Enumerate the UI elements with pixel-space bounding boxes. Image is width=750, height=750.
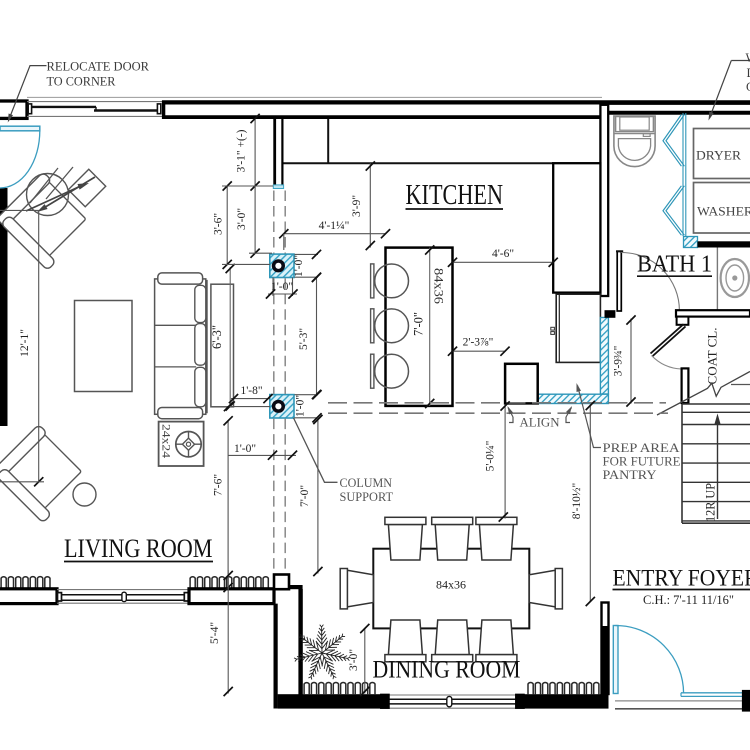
- svg-text:WASHER: WASHER: [697, 205, 750, 219]
- svg-text:4'-1¼": 4'-1¼": [319, 220, 350, 232]
- svg-text:1'-0": 1'-0": [295, 395, 307, 417]
- svg-text:W: W: [746, 51, 750, 65]
- svg-text:KITCHEN: KITCHEN: [406, 180, 504, 211]
- svg-text:84x36: 84x36: [432, 268, 446, 304]
- svg-text:PANTRY: PANTRY: [603, 467, 658, 482]
- svg-text:8'-10½": 8'-10½": [571, 483, 583, 519]
- svg-text:2'-3⅞": 2'-3⅞": [463, 337, 494, 349]
- svg-text:7'-0": 7'-0": [299, 485, 311, 507]
- svg-text:7'-6": 7'-6": [213, 474, 225, 496]
- svg-text:D: D: [747, 66, 750, 80]
- svg-text:C.H.: 7'-11 11/16": C.H.: 7'-11 11/16": [643, 592, 734, 607]
- svg-text:1'-0": 1'-0": [293, 255, 305, 277]
- svg-text:84x36: 84x36: [436, 578, 466, 592]
- svg-text:LIVING ROOM: LIVING ROOM: [64, 534, 213, 563]
- svg-text:5'-3": 5'-3": [298, 328, 310, 350]
- svg-text:3'-0": 3'-0": [236, 208, 248, 230]
- svg-text:COAT CL.: COAT CL.: [705, 328, 720, 385]
- svg-text:24x24: 24x24: [160, 424, 172, 458]
- svg-text:4'-6": 4'-6": [492, 248, 514, 260]
- svg-text:1'-0": 1'-0": [234, 443, 256, 455]
- svg-text:C: C: [746, 80, 750, 94]
- svg-text:3'-9¾": 3'-9¾": [613, 346, 625, 377]
- svg-text:TO CORNER: TO CORNER: [47, 74, 116, 89]
- svg-text:1'-0": 1'-0": [271, 281, 293, 293]
- svg-text:3'-0": 3'-0": [348, 649, 360, 671]
- svg-text:BATH 1: BATH 1: [637, 252, 712, 278]
- svg-text:12R UP: 12R UP: [703, 483, 718, 522]
- svg-text:3'-6": 3'-6": [213, 213, 225, 235]
- svg-text:COLUMN: COLUMN: [340, 475, 393, 490]
- svg-text:3'-9": 3'-9": [351, 195, 363, 217]
- svg-text:5'-4": 5'-4": [209, 622, 221, 644]
- svg-text:3'-1" +(-): 3'-1" +(-): [236, 129, 248, 172]
- svg-text:ENTRY FOYER: ENTRY FOYER: [613, 566, 750, 591]
- svg-text:ALIGN: ALIGN: [520, 415, 561, 430]
- svg-text:DINING ROOM: DINING ROOM: [373, 657, 521, 684]
- svg-text:DRYER: DRYER: [696, 149, 742, 163]
- svg-text:1'-8": 1'-8": [240, 385, 262, 397]
- svg-text:SUPPORT: SUPPORT: [340, 489, 394, 504]
- svg-text:12'-1": 12'-1": [19, 329, 31, 357]
- svg-text:6'-3": 6'-3": [210, 325, 224, 349]
- svg-text:7'-0": 7'-0": [412, 312, 426, 336]
- svg-text:5'-0¼": 5'-0¼": [485, 441, 497, 472]
- svg-text:RELOCATE DOOR: RELOCATE DOOR: [47, 59, 150, 74]
